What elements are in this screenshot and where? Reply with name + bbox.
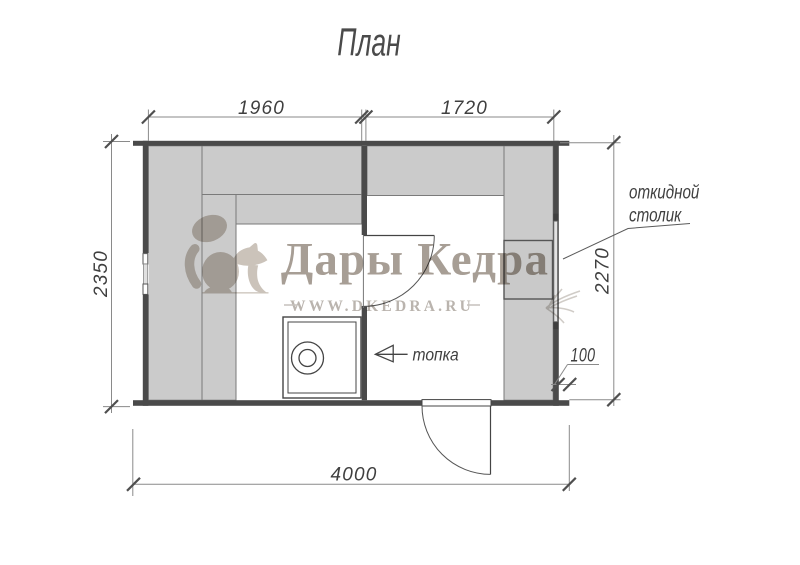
- svg-text:План: План: [337, 22, 400, 65]
- svg-text:100: 100: [571, 344, 596, 365]
- svg-text:1960: 1960: [238, 98, 285, 119]
- svg-text:2350: 2350: [91, 250, 112, 298]
- svg-text:1720: 1720: [441, 98, 488, 119]
- svg-text:столик: столик: [629, 204, 682, 226]
- svg-text:4000: 4000: [330, 464, 377, 485]
- svg-text:Дары Кедра: Дары Кедра: [281, 234, 549, 286]
- svg-text:WWW.DKEDRA.RU: WWW.DKEDRA.RU: [290, 298, 474, 315]
- svg-text:2270: 2270: [593, 247, 614, 295]
- svg-text:откидной: откидной: [629, 181, 700, 203]
- svg-text:топка: топка: [413, 344, 459, 364]
